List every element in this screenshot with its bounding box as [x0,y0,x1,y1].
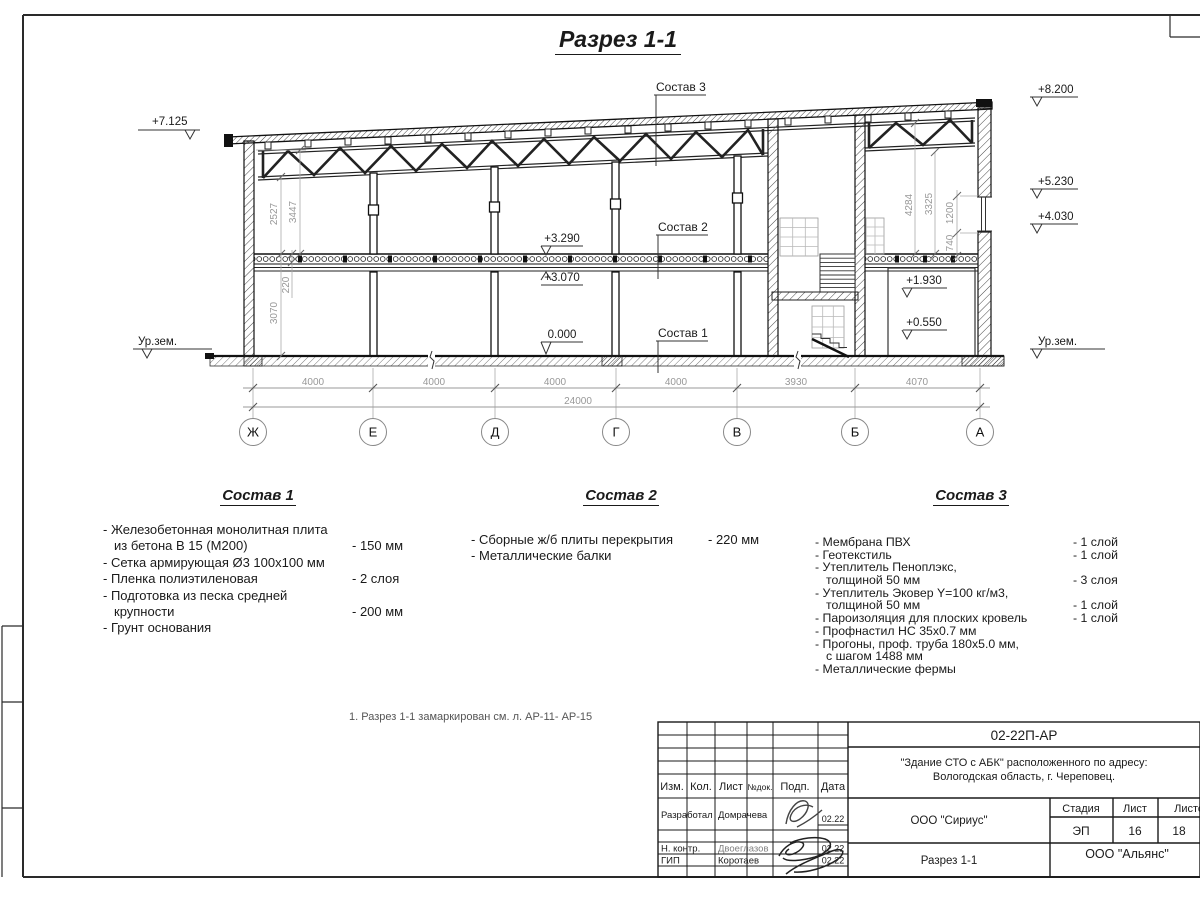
vdim-1200: 1200 [945,201,956,224]
note: 1. Разрез 1-1 замаркирован см. л. АР-11-… [349,711,592,723]
dimension-strings: 4000 4000 4000 4000 3930 4070 24000 Ж Е … [240,368,994,446]
row-role-2: ГИП [661,856,680,867]
elev-ground-right: Ур.зем. [1030,336,1105,358]
elevation-label: 0.000 [548,329,577,341]
stair-landing [772,292,858,300]
elevation-label: Ур.зем. [138,336,177,348]
axis-label-6: А [976,425,985,440]
elevation-label: +8.200 [1038,84,1074,96]
window-grid-right-room [866,218,884,254]
sheet-number: 16 [1128,824,1142,838]
stair-upper-flight [820,254,855,292]
col-list: Лист [719,781,743,793]
list-item: - Пленка полиэтиленовая- 2 слоя [103,571,413,587]
vdim-3325: 3325 [924,192,935,215]
axis-label-2: Д [491,425,500,440]
wall-stair-right [855,115,865,356]
stage-value: ЭП [1072,824,1089,838]
list-item: - Подготовка из песка средней [103,588,413,604]
hdim-4: 3930 [785,377,808,388]
window-right-wall [977,197,992,231]
elev-right-1: +5.230 [1030,176,1078,198]
client-org: ООО "Альянс" [1085,847,1169,861]
hdim-3: 4000 [665,377,688,388]
leader-label-2: Состав 2 [658,220,708,234]
composition-3-title-text: Состав 3 [933,487,1009,506]
doc-number: 02-22П-АР [991,728,1058,743]
col-podp: Подп. [780,781,809,793]
stair-shaft [772,218,884,357]
col-kol: Кол. [690,781,712,793]
list-item: - Металлические фермы [815,663,1127,676]
row-name-0: Домрачева [718,810,768,821]
elev-slab-top: +3.290 [541,233,583,255]
stage-label: Стадия [1062,803,1100,815]
elev-right-2: +4.030 [1030,211,1078,233]
hdim-1: 4000 [423,377,446,388]
list-item: - Железобетонная монолитная плита [103,522,413,538]
list-item: - Сборные ж/б плиты перекрытия- 220 мм [471,532,771,548]
sheets-total: 18 [1172,824,1186,838]
wall-right-lower [978,232,991,356]
project-line1: "Здание СТО с АБК" расположенного по адр… [900,757,1147,769]
elev-mezz-1: +1.930 [902,275,947,297]
composition-1: Состав 1 - Железобетонная монолитная пли… [103,487,413,637]
elevation-label: +3.290 [544,233,580,245]
row-date-0: 02.22 [822,814,845,824]
col-ndok: №док. [748,782,773,792]
composition-3: Состав 3 - Мембрана ПВХ- 1 слой - Геотек… [815,487,1127,676]
composition-3-title: Состав 3 [815,487,1127,504]
signature-razrabotal [786,801,822,827]
hdim-2: 4000 [544,377,567,388]
leader-label-3: Состав 3 [656,80,706,94]
row-role-0: Разработал [661,810,713,821]
window-grid-upper [780,218,818,256]
row-name-2: Коротаев [718,856,759,867]
list-item: из бетона В 15 (М200)- 150 мм [103,538,413,554]
section-drawing: +7.125 Ур.зем. +8.200 +5.230 +4.030 Ур.з… [0,0,1200,900]
wall-right-upper [978,108,991,197]
composition-1-title-text: Состав 1 [220,487,296,506]
wall-left [244,141,254,356]
truss-right [865,120,975,151]
dimension-labels: 4000 4000 4000 4000 3930 4070 24000 [302,377,929,407]
list-item: крупности- 200 мм [103,604,413,620]
elev-right-top: +8.200 [1030,84,1078,106]
vdim-2527: 2527 [269,202,280,225]
axis-label-4: В [733,425,742,440]
parapet-cap-right [976,99,992,107]
page-title-text: Разрез 1-1 [555,26,681,55]
elevation-label: Ур.зем. [1038,336,1077,348]
elev-mezz-2: +0.550 [902,317,947,339]
composition-2-title: Состав 2 [471,487,771,504]
wall-stair-left [768,119,778,356]
axis-label-3: Г [612,425,619,440]
project-line2: Вологодская область, г. Череповец. [933,771,1115,783]
elevation-label: +7.125 [152,116,188,128]
axis-label-5: Б [851,425,860,440]
sheet-label: Лист [1123,803,1147,815]
eave-cap-left [224,134,233,147]
page-title: Разрез 1-1 [518,26,718,53]
vdim-4284: 4284 [904,193,915,216]
sheets-label: Листов [1174,803,1200,815]
row-name-1: Двоеглазов [718,844,769,855]
elev-ground-left: Ур.зем. [133,336,212,358]
hdim-total: 24000 [564,396,592,407]
elevation-label: +3.070 [544,272,580,284]
vdim-3070: 3070 [269,301,280,324]
sheet-name: Разрез 1-1 [921,855,977,867]
elevation-label: +0.550 [906,317,942,329]
axis-label-1: Е [369,425,378,440]
composition-2-title-text: Состав 2 [583,487,659,506]
designer-org: ООО "Сириус" [910,815,987,827]
composition-2: Состав 2 - Сборные ж/б плиты перекрытия-… [471,487,771,565]
ground [205,351,1004,369]
list-item: - Грунт основания [103,620,413,636]
elev-left-top: +7.125 [138,116,200,139]
hdim-0: 4000 [302,377,325,388]
title-block: Изм. Кол. Лист №док. Подп. Дата Разработ… [658,722,1200,877]
axis-label-0: Ж [247,425,259,440]
floor-slab [254,254,768,271]
elevation-label: +1.930 [906,275,942,287]
vdim-3447: 3447 [288,200,299,223]
elev-slab-bot: +3.070 [541,272,583,285]
drawing-sheet: +7.125 Ур.зем. +8.200 +5.230 +4.030 Ур.з… [0,0,1200,900]
elevation-label: +5.230 [1038,176,1074,188]
col-data: Дата [821,781,846,793]
vdim-220: 220 [281,276,292,293]
row-role-1: Н. контр. [661,844,700,855]
list-item: - Сетка армирующая Ø3 100х100 мм [103,555,413,571]
hdim-5: 4070 [906,377,929,388]
col-izm: Изм. [660,781,684,793]
elev-floor: 0.000 [541,329,583,354]
leader-label-1: Состав 1 [658,326,708,340]
list-item: - Металлические балки [471,548,771,564]
axis-bubbles: Ж Е Д Г В Б А [240,419,994,446]
composition-1-title: Состав 1 [103,487,413,504]
elevation-label: +4.030 [1038,211,1074,223]
vdim-740: 740 [945,234,956,251]
